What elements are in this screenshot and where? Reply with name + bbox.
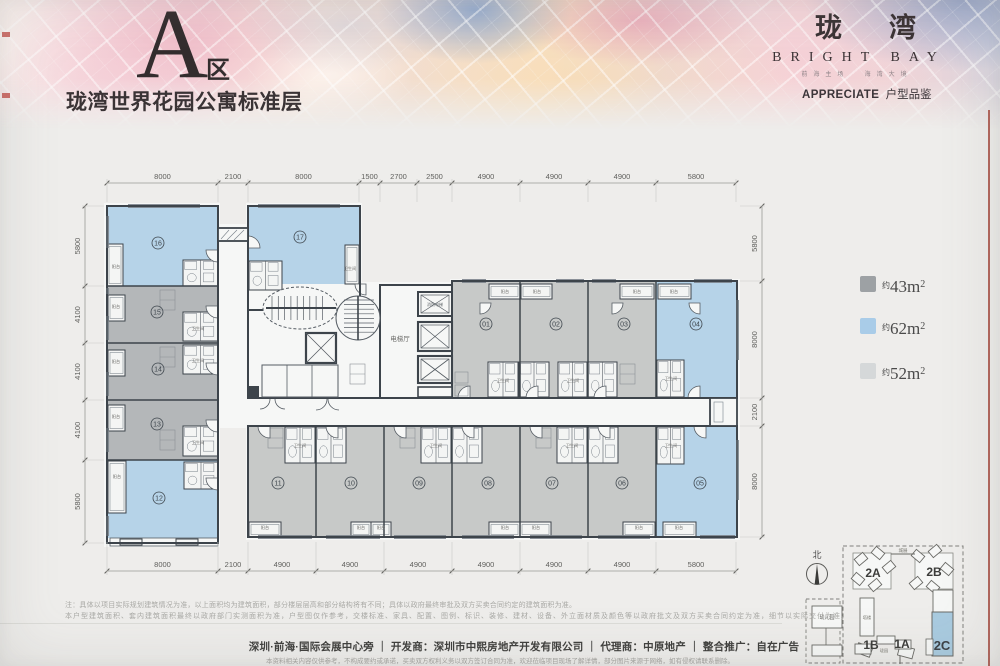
svg-text:卫生间: 卫生间 — [567, 377, 580, 384]
svg-text:阳台: 阳台 — [261, 524, 269, 531]
svg-text:5800: 5800 — [750, 235, 759, 252]
svg-text:16: 16 — [154, 240, 162, 247]
svg-text:阳台: 阳台 — [112, 263, 120, 270]
svg-text:阳台: 阳台 — [112, 303, 120, 310]
svg-text:09: 09 — [415, 480, 423, 487]
svg-text:北: 北 — [812, 550, 821, 560]
svg-text:卫生间: 卫生间 — [294, 442, 307, 449]
svg-text:4900: 4900 — [614, 172, 631, 181]
svg-text:15: 15 — [153, 309, 161, 316]
svg-text:4900: 4900 — [546, 560, 563, 569]
svg-text:2B: 2B — [926, 565, 942, 579]
svg-text:阳台: 阳台 — [533, 288, 541, 295]
svg-text:约52m2: 约52m2 — [882, 364, 925, 383]
svg-text:消防电梯: 消防电梯 — [427, 301, 443, 307]
svg-text:5800: 5800 — [688, 172, 705, 181]
svg-text:8000: 8000 — [295, 172, 312, 181]
svg-text:03: 03 — [620, 321, 628, 328]
svg-text:阳台: 阳台 — [112, 358, 120, 365]
svg-text:阳台: 阳台 — [112, 413, 120, 420]
svg-text:约62m2: 约62m2 — [882, 319, 925, 338]
svg-text:8000: 8000 — [750, 473, 759, 490]
svg-text:4900: 4900 — [410, 560, 427, 569]
svg-text:城展: 城展 — [899, 547, 908, 554]
svg-text:2100: 2100 — [750, 404, 759, 421]
svg-text:4900: 4900 — [614, 560, 631, 569]
svg-text:04: 04 — [692, 321, 700, 328]
svg-text:阳台: 阳台 — [675, 524, 683, 531]
svg-text:阳台: 阳台 — [377, 524, 385, 531]
svg-text:塔楼: 塔楼 — [863, 614, 871, 621]
svg-text:阳台: 阳台 — [113, 473, 121, 480]
svg-text:2700: 2700 — [390, 172, 407, 181]
svg-text:约43m2: 约43m2 — [882, 277, 925, 296]
svg-text:01: 01 — [482, 321, 490, 328]
svg-text:08: 08 — [484, 480, 492, 487]
svg-text:卫生间: 卫生间 — [430, 442, 443, 449]
svg-text:13: 13 — [153, 421, 161, 428]
svg-text:卫生间: 卫生间 — [665, 442, 678, 449]
svg-text:11: 11 — [274, 480, 281, 487]
svg-text:02: 02 — [552, 321, 560, 328]
svg-text:17: 17 — [296, 234, 304, 241]
svg-text:卫生间: 卫生间 — [566, 442, 579, 449]
svg-text:阳台: 阳台 — [635, 524, 643, 531]
svg-text:4100: 4100 — [73, 363, 82, 380]
svg-text:卫生间: 卫生间 — [192, 439, 205, 446]
svg-text:4100: 4100 — [73, 306, 82, 323]
svg-text:06: 06 — [618, 480, 626, 487]
svg-text:卫生间: 卫生间 — [665, 375, 678, 382]
svg-text:4900: 4900 — [478, 560, 495, 569]
svg-text:5800: 5800 — [73, 493, 82, 510]
svg-text:4900: 4900 — [274, 560, 291, 569]
svg-text:4900: 4900 — [342, 560, 359, 569]
svg-text:5800: 5800 — [73, 238, 82, 255]
svg-text:1500: 1500 — [361, 172, 378, 181]
svg-text:8000: 8000 — [750, 331, 759, 348]
svg-text:电梯厅: 电梯厅 — [390, 334, 410, 343]
svg-text:8000: 8000 — [154, 172, 171, 181]
svg-text:卫生间: 卫生间 — [344, 265, 357, 272]
svg-text:阳台: 阳台 — [532, 524, 540, 531]
svg-text:12: 12 — [155, 495, 163, 502]
svg-text:2A: 2A — [865, 566, 881, 580]
svg-text:4900: 4900 — [546, 172, 563, 181]
svg-text:卫生间: 卫生间 — [192, 357, 205, 364]
svg-text:14: 14 — [154, 366, 162, 373]
svg-text:阳台: 阳台 — [501, 288, 509, 295]
svg-text:2500: 2500 — [426, 172, 443, 181]
svg-text:8000: 8000 — [154, 560, 171, 569]
svg-text:阳台: 阳台 — [357, 524, 365, 531]
svg-text:4100: 4100 — [73, 422, 82, 439]
svg-text:卫生间: 卫生间 — [497, 377, 510, 384]
svg-text:2100: 2100 — [225, 560, 242, 569]
svg-text:2100: 2100 — [225, 172, 242, 181]
svg-text:阳台: 阳台 — [670, 288, 678, 295]
svg-text:07: 07 — [548, 480, 556, 487]
svg-text:阳台: 阳台 — [501, 524, 509, 531]
svg-text:阳台: 阳台 — [633, 288, 641, 295]
svg-text:卫生间: 卫生间 — [192, 325, 205, 332]
svg-text:4900: 4900 — [478, 172, 495, 181]
svg-text:10: 10 — [347, 480, 355, 487]
svg-text:5800: 5800 — [688, 560, 705, 569]
svg-text:05: 05 — [696, 480, 704, 487]
